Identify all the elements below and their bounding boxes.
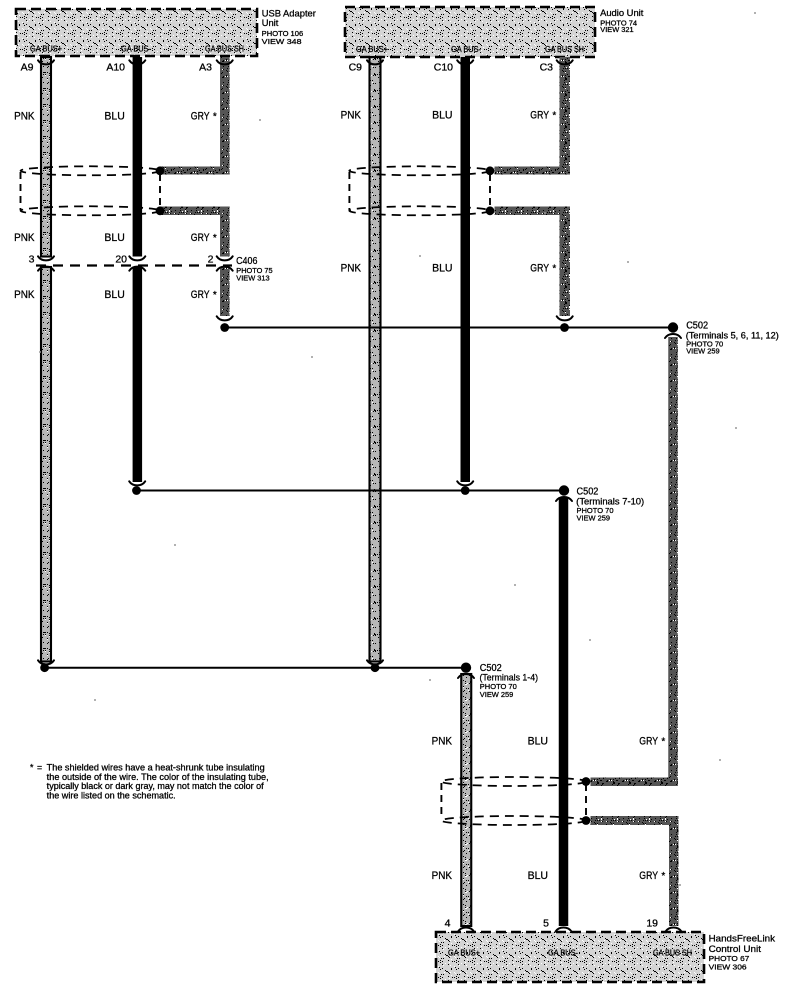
svg-text:GA BUS SH: GA BUS SH: [205, 44, 244, 54]
svg-text:GA BUS+: GA BUS+: [30, 44, 62, 54]
svg-text:PNK: PNK: [14, 289, 35, 301]
svg-text:C9: C9: [349, 62, 363, 74]
svg-text:C10: C10: [434, 62, 453, 74]
svg-text:*: *: [661, 871, 665, 882]
svg-text:VIEW 306: VIEW 306: [709, 963, 747, 972]
svg-text:Control Unit: Control Unit: [709, 943, 762, 954]
svg-text:A9: A9: [21, 62, 34, 74]
svg-text:PNK: PNK: [341, 263, 362, 275]
svg-text:Unit: Unit: [262, 17, 279, 28]
svg-text:GRY: GRY: [639, 736, 658, 748]
svg-text:HandsFreeLink: HandsFreeLink: [709, 932, 776, 943]
svg-text:=: =: [37, 762, 42, 772]
svg-text:GA BUS SH: GA BUS SH: [653, 948, 692, 958]
svg-text:VIEW 259: VIEW 259: [480, 690, 514, 699]
svg-text:C3: C3: [540, 62, 554, 74]
svg-text:*: *: [213, 111, 217, 122]
svg-text:GA BUS-: GA BUS-: [121, 44, 151, 54]
svg-text:20: 20: [115, 254, 127, 266]
svg-text:5: 5: [543, 918, 549, 930]
svg-text:19: 19: [646, 918, 658, 930]
svg-text:A3: A3: [199, 62, 212, 74]
svg-text:BLU: BLU: [432, 263, 452, 275]
svg-text:GRY: GRY: [530, 110, 549, 122]
svg-text:BLU: BLU: [528, 870, 548, 882]
svg-text:VIEW 259: VIEW 259: [577, 513, 611, 522]
svg-text:GA BUS SH: GA BUS SH: [545, 44, 584, 54]
svg-text:GRY: GRY: [191, 110, 210, 122]
svg-text:A10: A10: [106, 62, 125, 74]
svg-text:BLU: BLU: [104, 289, 124, 301]
svg-text:3: 3: [29, 254, 35, 266]
svg-text:(Terminals 7-10): (Terminals 7-10): [576, 496, 644, 506]
svg-text:BLU: BLU: [528, 736, 548, 748]
svg-text:GRY: GRY: [530, 263, 549, 275]
svg-text:2: 2: [208, 254, 214, 266]
svg-text:*: *: [213, 290, 217, 301]
svg-text:GA BUS+: GA BUS+: [448, 948, 480, 958]
svg-text:*: *: [552, 264, 556, 275]
svg-text:*: *: [30, 762, 34, 772]
svg-text:4: 4: [445, 918, 451, 930]
svg-text:PNK: PNK: [432, 870, 453, 882]
svg-text:*: *: [213, 233, 217, 244]
svg-text:GA BUS+: GA BUS+: [356, 44, 388, 54]
svg-text:PNK: PNK: [341, 110, 362, 122]
svg-text:VIEW 348: VIEW 348: [262, 37, 302, 46]
svg-text:BLU: BLU: [104, 232, 124, 244]
svg-text:PNK: PNK: [14, 232, 35, 244]
svg-text:BLU: BLU: [432, 110, 452, 122]
svg-text:VIEW 313: VIEW 313: [236, 273, 269, 282]
svg-text:The shielded wires have a heat: The shielded wires have a heat-shrunk tu…: [47, 762, 265, 772]
svg-text:VIEW 321: VIEW 321: [600, 25, 633, 34]
svg-text:the wire listed on the schemat: the wire listed on the schematic.: [47, 791, 176, 801]
svg-text:*: *: [661, 737, 665, 748]
svg-text:PNK: PNK: [432, 736, 453, 748]
svg-text:GRY: GRY: [191, 289, 210, 301]
svg-text:*: *: [552, 111, 556, 122]
svg-text:GRY: GRY: [191, 232, 210, 244]
svg-text:GA BUS-: GA BUS-: [451, 44, 481, 54]
svg-text:GRY: GRY: [639, 870, 658, 882]
svg-text:GA BUS-: GA BUS-: [548, 948, 578, 958]
svg-text:VIEW 259: VIEW 259: [686, 347, 720, 356]
svg-text:BLU: BLU: [104, 110, 124, 122]
svg-text:Audio Unit: Audio Unit: [600, 7, 644, 18]
svg-text:PNK: PNK: [14, 110, 35, 122]
